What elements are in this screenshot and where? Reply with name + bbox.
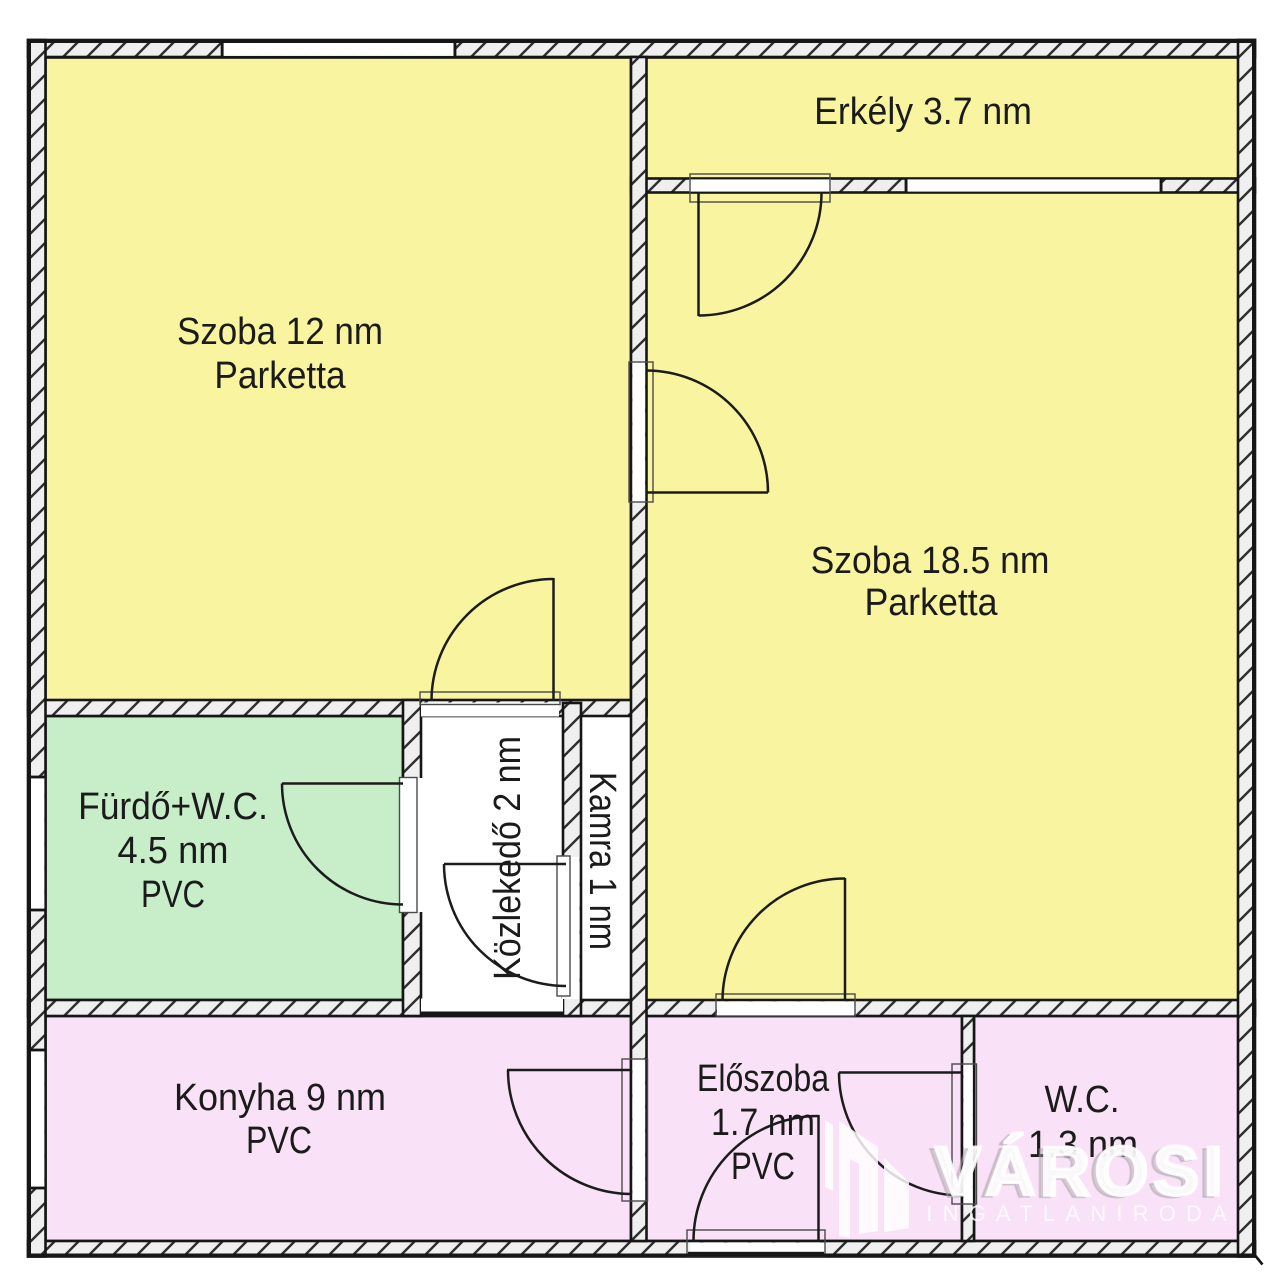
svg-text:PVC: PVC: [141, 874, 205, 916]
svg-text:Parketta: Parketta: [864, 581, 998, 623]
svg-text:INGATLANIRODA: INGATLANIRODA: [926, 1201, 1237, 1226]
svg-text:Konyha 9 nm: Konyha 9 nm: [174, 1076, 386, 1118]
svg-text:Szoba 18.5 nm: Szoba 18.5 nm: [811, 539, 1050, 581]
svg-text:W.C.: W.C.: [1045, 1078, 1120, 1121]
svg-text:4.5 nm: 4.5 nm: [118, 828, 229, 871]
svg-text:Fürdő+W.C.: Fürdő+W.C.: [78, 785, 268, 827]
svg-text:PVC: PVC: [246, 1120, 312, 1162]
svg-text:VÁROSI: VÁROSI: [935, 1132, 1227, 1210]
svg-text:Szoba 12 nm: Szoba 12 nm: [177, 310, 383, 353]
svg-text:Parketta: Parketta: [214, 354, 346, 397]
svg-text:Kamra 1 nm: Kamra 1 nm: [581, 772, 624, 950]
svg-text:1.7 nm: 1.7 nm: [711, 1100, 815, 1143]
svg-text:Előszoba: Előszoba: [697, 1058, 830, 1100]
svg-text:Erkély 3.7 nm: Erkély 3.7 nm: [814, 90, 1032, 132]
svg-text:PVC: PVC: [731, 1146, 795, 1188]
svg-text:Közlekedő 2 nm: Közlekedő 2 nm: [485, 736, 528, 980]
